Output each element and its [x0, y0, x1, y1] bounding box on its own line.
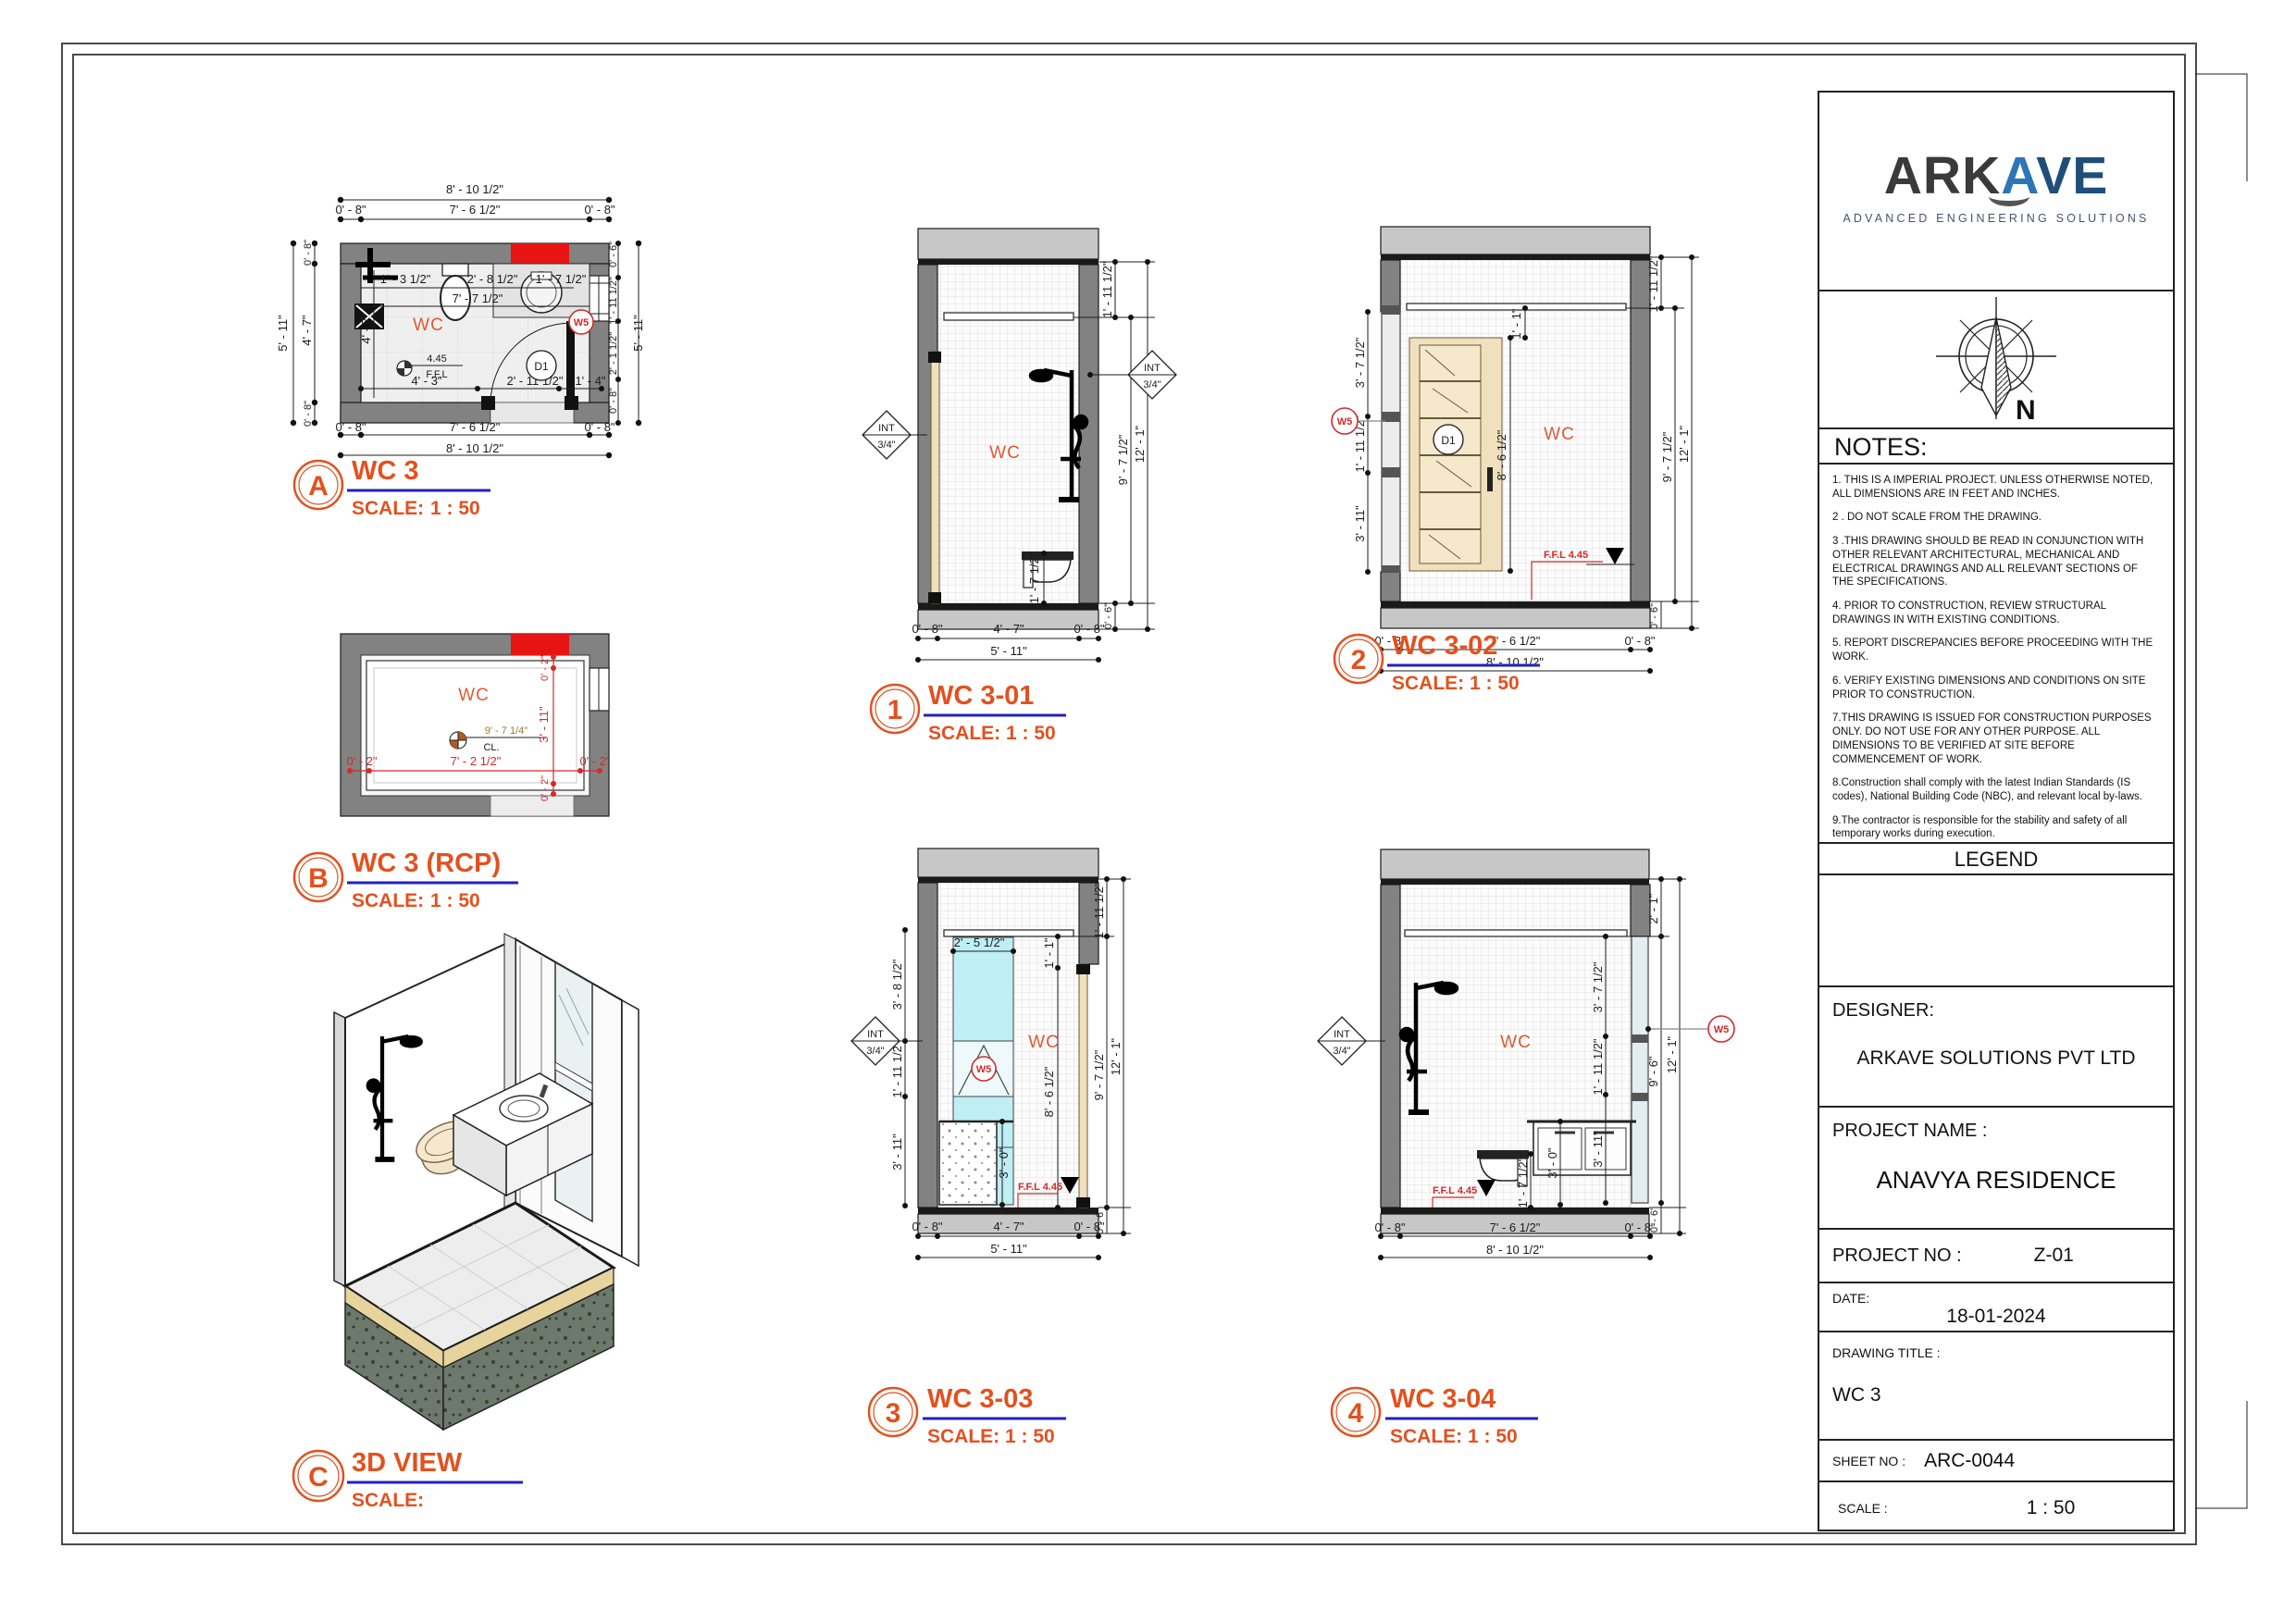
- dim-label: 2' - 1 1/2": [608, 332, 619, 375]
- legend-header: LEGEND: [1819, 844, 2173, 875]
- logo-box: ARKAVE ADVANCED ENGINEERING SOLUTIONS: [1819, 93, 2173, 291]
- svg-text:3: 3: [886, 1398, 901, 1429]
- svg-text:1 : 50: 1 : 50: [1468, 1426, 1518, 1447]
- dim-label: 3' - 0": [1545, 1147, 1559, 1178]
- finish-tag-int: INT 3/4": [1318, 1017, 1385, 1065]
- dim-label: 3' - 0": [997, 1147, 1011, 1178]
- ffl-value: 4.45: [427, 353, 446, 365]
- dim-label: 8' - 10 1/2": [446, 441, 503, 455]
- dim-label: 7' - 2 1/2": [451, 754, 502, 768]
- drawing-title-box: DRAWING TITLE : WC 3: [1819, 1332, 2173, 1441]
- view-elev-wc3-02: D1 3' - 7 1/2" 1' - 11 1/2" 3' - 11" 1' …: [1332, 227, 1699, 694]
- room-label: WC: [1028, 1033, 1060, 1052]
- svg-text:F.F.L 4.45: F.F.L 4.45: [1544, 550, 1588, 561]
- dim-label: 4' - 7": [300, 315, 314, 345]
- sheet-no-box: SHEET NO : ARC-0044: [1819, 1441, 2173, 1482]
- svg-text:1 : 50: 1 : 50: [1006, 723, 1056, 744]
- svg-text:W5: W5: [574, 317, 590, 328]
- svg-text:WC 3: WC 3: [352, 456, 419, 486]
- dim-label: 8' - 6 1/2": [1042, 1066, 1056, 1117]
- note-item: 4. PRIOR TO CONSTRUCTION, REVIEW STRUCTU…: [1832, 600, 2160, 626]
- svg-text:WC 3-02: WC 3-02: [1392, 631, 1497, 661]
- dim-label: 8' - 6 1/2": [1495, 429, 1508, 480]
- dim-label: 2' - 8 1/2": [467, 272, 518, 286]
- project-name-value: ANAVYA RESIDENCE: [1819, 1166, 2173, 1195]
- dim-label: 0' - 8": [335, 420, 366, 434]
- dim-label: 3' - 11": [1591, 1131, 1605, 1168]
- dim-label: 0' - 8": [335, 203, 366, 217]
- dim-label: 5' - 11": [990, 1242, 1027, 1256]
- sheet-no-label: SHEET NO :: [1832, 1454, 1905, 1468]
- dim-label: 4' - 7": [359, 313, 373, 343]
- logo-text-dark: ARK: [1884, 146, 2002, 205]
- dim-label: 4' - 7": [993, 1220, 1024, 1233]
- room-label: WC: [413, 316, 444, 335]
- dim-label: 1' - 4": [575, 374, 605, 388]
- svg-text:W5: W5: [976, 1064, 992, 1075]
- dim-label: 3' - 7 1/2": [1353, 337, 1367, 388]
- dim-label: 1' - 11 1/2": [608, 277, 619, 325]
- window-tag-w5: W5: [569, 310, 593, 334]
- dim-label: 12' - 1": [1133, 425, 1147, 463]
- light-height: 9' - 7 1/4": [485, 725, 527, 737]
- note-item: 2 . DO NOT SCALE FROM THE DRAWING.: [1832, 511, 2160, 525]
- dim-label: 12' - 1": [1109, 1037, 1123, 1075]
- dim-label: 7' - 6 1/2": [450, 203, 501, 217]
- dim-label: 0' - 2": [540, 655, 551, 681]
- dim-label: 5' - 11": [631, 315, 645, 352]
- date-value: 18-01-2024: [1819, 1306, 2173, 1328]
- svg-text:INT: INT: [878, 423, 895, 434]
- svg-text:F.F.L 4.45: F.F.L 4.45: [1433, 1185, 1477, 1196]
- dim-label: 0' - 6": [608, 242, 619, 267]
- view-label-C: C 3D VIEW SCALE:: [293, 1448, 523, 1511]
- svg-text:4: 4: [1348, 1398, 1364, 1429]
- dim-label: 5' - 11": [990, 644, 1027, 658]
- dim-label: 0' - 8": [1074, 622, 1104, 636]
- dim-label: 9' - 7 1/2": [1092, 1049, 1106, 1100]
- dim-label: 0' - 8": [584, 420, 614, 434]
- date-box: DATE: 18-01-2024: [1819, 1283, 2173, 1332]
- shaft-red-marker: [511, 243, 569, 264]
- dim-label: 12' - 1": [1677, 425, 1691, 463]
- svg-text:SCALE:: SCALE:: [928, 723, 1000, 744]
- dim-label: 0' - 8": [1374, 1220, 1405, 1234]
- scale-box: SCALE : 1 : 50: [1819, 1482, 2173, 1533]
- finish-tag-int: INT 3/4": [851, 1017, 923, 1065]
- note-item: 6. VERIFY EXISTING DIMENSIONS AND CONDIT…: [1832, 675, 2160, 701]
- svg-text:SCALE:: SCALE:: [352, 498, 424, 519]
- dim-label: 2' - 5 1/2": [954, 935, 1005, 949]
- logo-tagline: ADVANCED ENGINEERING SOLUTIONS: [1819, 212, 2173, 225]
- notes-title: NOTES:: [1819, 429, 2173, 462]
- dim-label: 1' - 11 1/2": [890, 1041, 904, 1097]
- e2-door-d1: D1: [1409, 338, 1502, 571]
- svg-text:C: C: [308, 1462, 329, 1493]
- north-arrow-icon: N: [1819, 291, 2173, 426]
- view-elev-wc3-01: 1' - 11 1/2" 9' - 7 1/2" 12' - 1" 0' - 6…: [863, 229, 1176, 744]
- legend-title: LEGEND: [1819, 844, 2173, 872]
- svg-text:1 : 50: 1 : 50: [1005, 1426, 1055, 1447]
- dim-label: 1' - 3 1/2": [380, 272, 431, 286]
- svg-text:INT: INT: [1334, 1029, 1350, 1040]
- dim-label: 12' - 1": [1665, 1035, 1679, 1073]
- view-label-B: B WC 3 (RCP) SCALE: 1 : 50: [294, 849, 518, 911]
- dim-label: 0' - 8": [584, 203, 614, 217]
- note-item: 5. REPORT DISCREPANCIES BEFORE PROCEEDIN…: [1832, 637, 2160, 663]
- svg-text:SCALE:: SCALE:: [352, 890, 424, 911]
- sheet-no-value: ARC-0044: [1924, 1450, 2015, 1472]
- dim-label: 0' - 8": [608, 388, 619, 414]
- scale-value: 1 : 50: [2027, 1497, 2076, 1519]
- dim-label: 1' - 11 1/2": [1100, 261, 1114, 317]
- north-label: N: [2016, 395, 2036, 426]
- svg-text:1: 1: [887, 695, 903, 725]
- notes-header: NOTES:: [1819, 429, 2173, 465]
- svg-text:3/4": 3/4": [1333, 1046, 1350, 1057]
- svg-text:SCALE:: SCALE:: [352, 1490, 424, 1511]
- svg-text:A: A: [308, 471, 329, 502]
- svg-text:D1: D1: [1441, 434, 1456, 447]
- towel-bar: [1405, 930, 1627, 936]
- notes-body: 1. THIS IS A IMPERIAL PROJECT. UNLESS OT…: [1819, 465, 2173, 844]
- e4-vanity: [1527, 1121, 1636, 1175]
- svg-text:WC 3 (RCP): WC 3 (RCP): [352, 849, 501, 878]
- dim-label: 0' - 2": [540, 775, 551, 801]
- scale-label: SCALE :: [1838, 1501, 1888, 1516]
- dim-label: 9' - 7 1/2": [1660, 431, 1674, 482]
- dim-label: 1' - 7 1/2": [1027, 552, 1041, 603]
- project-no-box: PROJECT NO : Z-01: [1819, 1230, 2173, 1283]
- finish-tag-int-right: INT 3/4": [1087, 351, 1176, 399]
- dim-label: 0' - 6": [1103, 603, 1114, 629]
- dim-label: 8' - 10 1/2": [1486, 1243, 1544, 1257]
- svg-text:WC 3-04: WC 3-04: [1390, 1384, 1496, 1414]
- dim-label: 0' - 6": [1649, 603, 1660, 629]
- e2-window-mullion: [1382, 305, 1400, 573]
- dim-label: 7' - 6 1/2": [450, 420, 501, 434]
- svg-text:W5: W5: [1337, 416, 1353, 427]
- svg-text:2: 2: [1351, 645, 1367, 675]
- drawing-title-label: DRAWING TITLE :: [1819, 1332, 2173, 1360]
- project-no-label: PROJECT NO :: [1832, 1245, 1962, 1267]
- cl-label: CL.: [483, 742, 499, 753]
- dim-label: 1' - 11 1/2": [1092, 882, 1106, 938]
- title-block: ARKAVE ADVANCED ENGINEERING SOLUTIONS N …: [1818, 91, 2175, 1531]
- svg-text:WC 3-01: WC 3-01: [928, 681, 1034, 711]
- view-plan-wc3: 8' - 10 1/2" 0' - 8" 7' - 6 1/2" 0' - 8"…: [276, 182, 645, 519]
- view-label-A: A WC 3 SCALE: 1 : 50: [294, 456, 490, 519]
- dim-label: 0' - 2": [579, 754, 610, 768]
- dim-label: 4' - 7": [993, 622, 1024, 636]
- dim-label: 7' - 7 1/2": [453, 291, 503, 305]
- dim-label: 9' - 7 1/2": [1116, 434, 1130, 485]
- project-no-value: Z-01: [2034, 1245, 2074, 1267]
- view-label-3: 3 WC 3-03 SCALE: 1 : 50: [869, 1384, 1066, 1447]
- dim-label: 0' - 2": [346, 754, 377, 768]
- svg-text:3D VIEW: 3D VIEW: [352, 1448, 463, 1478]
- rcp-walls: [341, 634, 609, 816]
- svg-text:1 : 50: 1 : 50: [1470, 673, 1520, 694]
- svg-text:D1: D1: [534, 360, 549, 373]
- designer-value: ARKAVE SOLUTIONS PVT LTD: [1819, 1047, 2173, 1070]
- arkave-logo: ARKAVE: [1884, 150, 2108, 203]
- note-item: 3 .THIS DRAWING SHOULD BE READ IN CONJUN…: [1832, 535, 2160, 589]
- dim-label: 1' - 1": [1509, 308, 1523, 339]
- dim-label: 9' - 6": [1646, 1056, 1660, 1086]
- svg-text:SCALE:: SCALE:: [1390, 1426, 1462, 1447]
- door-tag-d1: D1: [527, 351, 556, 380]
- dim-label: 0' - 8": [912, 1220, 942, 1233]
- note-item: 1. THIS IS A IMPERIAL PROJECT. UNLESS OT…: [1832, 474, 2160, 501]
- dim-label: 3' - 11": [1353, 505, 1367, 542]
- room-label: WC: [989, 443, 1021, 463]
- dim-label: 1' - 11 1/2": [1646, 255, 1660, 312]
- view-label-4: 4 WC 3-04 SCALE: 1 : 50: [1332, 1384, 1538, 1447]
- svg-text:B: B: [308, 863, 329, 894]
- towel-bar: [944, 313, 1074, 320]
- svg-text:INT: INT: [867, 1029, 884, 1040]
- logo-text-blue: VE: [2036, 146, 2108, 205]
- dim-label: 0' - 8": [303, 240, 314, 266]
- dim-label: 0' - 8": [1624, 634, 1655, 648]
- designer-label: DESIGNER:: [1819, 987, 2173, 1022]
- room-label: WC: [1500, 1033, 1532, 1052]
- note-item: 8.Construction shall comply with the lat…: [1832, 776, 2160, 803]
- svg-text:INT: INT: [1144, 363, 1160, 374]
- legend-box: [1819, 875, 2173, 987]
- dim-label: 7' - 6 1/2": [1490, 1220, 1541, 1234]
- room-label: WC: [1544, 425, 1575, 444]
- dim-label: 1' - 7 1/2": [536, 272, 587, 286]
- toilet-tank: [442, 264, 468, 276]
- dim-label: 1' - 7 1/2": [1516, 1157, 1530, 1208]
- logo-swoosh: [1989, 186, 2029, 206]
- dim-label: 3' - 11": [537, 706, 551, 743]
- room-label: WC: [458, 686, 490, 705]
- svg-text:W5: W5: [1714, 1024, 1730, 1035]
- dim-label: 3' - 7 1/2": [1591, 961, 1605, 1012]
- dim-label: 1' - 1": [1042, 937, 1056, 968]
- svg-text:1 : 50: 1 : 50: [430, 498, 480, 519]
- ffl-label: F.F.L: [426, 369, 447, 380]
- svg-text:SCALE:: SCALE:: [1392, 673, 1464, 694]
- view-elev-wc3-04: 2' - 1" 3' - 7 1/2" 1' - 11 1/2" 3' - 11…: [1318, 849, 1734, 1447]
- view-elev-wc3-03: W5 2' - 5 1/2" 1' - 1" 3': [851, 849, 1131, 1447]
- svg-text:3/4": 3/4": [866, 1046, 884, 1057]
- note-item: 9.The contractor is responsible for the …: [1832, 814, 2160, 841]
- dim-label: 0' - 8": [1074, 1220, 1104, 1233]
- project-name-label: PROJECT NAME :: [1819, 1108, 2173, 1142]
- dim-label: 5' - 11": [276, 315, 290, 352]
- svg-text:3/4": 3/4": [1143, 379, 1160, 390]
- dim-label: 2' - 1": [1646, 893, 1660, 923]
- svg-text:1 : 50: 1 : 50: [430, 890, 480, 911]
- date-label: DATE:: [1819, 1283, 2173, 1306]
- view-rcp-wc3: 9' - 7 1/4" CL. 0' - 2" 7' - 2 1/2" 0' -…: [294, 634, 611, 911]
- dim-label: 8' - 10 1/2": [446, 182, 503, 196]
- dim-label: 0' - 8": [912, 622, 942, 636]
- window-tag-w5: W5: [1645, 1016, 1734, 1042]
- fold-marks: [2195, 74, 2247, 1508]
- note-item: 7.THIS DRAWING IS ISSUED FOR CONSTRUCTIO…: [1832, 712, 2160, 766]
- svg-text:WC 3-03: WC 3-03: [927, 1384, 1033, 1414]
- project-name-box: PROJECT NAME : ANAVYA RESIDENCE: [1819, 1108, 2173, 1230]
- dim-label: 1' - 11 1/2": [1591, 1038, 1605, 1095]
- dim-label: 0' - 8": [1624, 1220, 1655, 1234]
- view-label-1: 1 WC 3-01 SCALE: 1 : 50: [871, 681, 1066, 744]
- dim-label: 0' - 8": [303, 401, 314, 427]
- designer-box: DESIGNER: ARKAVE SOLUTIONS PVT LTD: [1819, 987, 2173, 1108]
- dim-label: 3' - 11": [890, 1134, 904, 1171]
- north-arrow-box: N: [1819, 291, 2173, 429]
- drawing-title-value: WC 3: [1819, 1360, 2173, 1406]
- dim-label: 3' - 8 1/2": [890, 959, 904, 1010]
- svg-text:3/4": 3/4": [877, 440, 895, 451]
- svg-text:F.F.L 4.45: F.F.L 4.45: [1018, 1182, 1062, 1193]
- svg-text:SCALE:: SCALE:: [927, 1426, 999, 1447]
